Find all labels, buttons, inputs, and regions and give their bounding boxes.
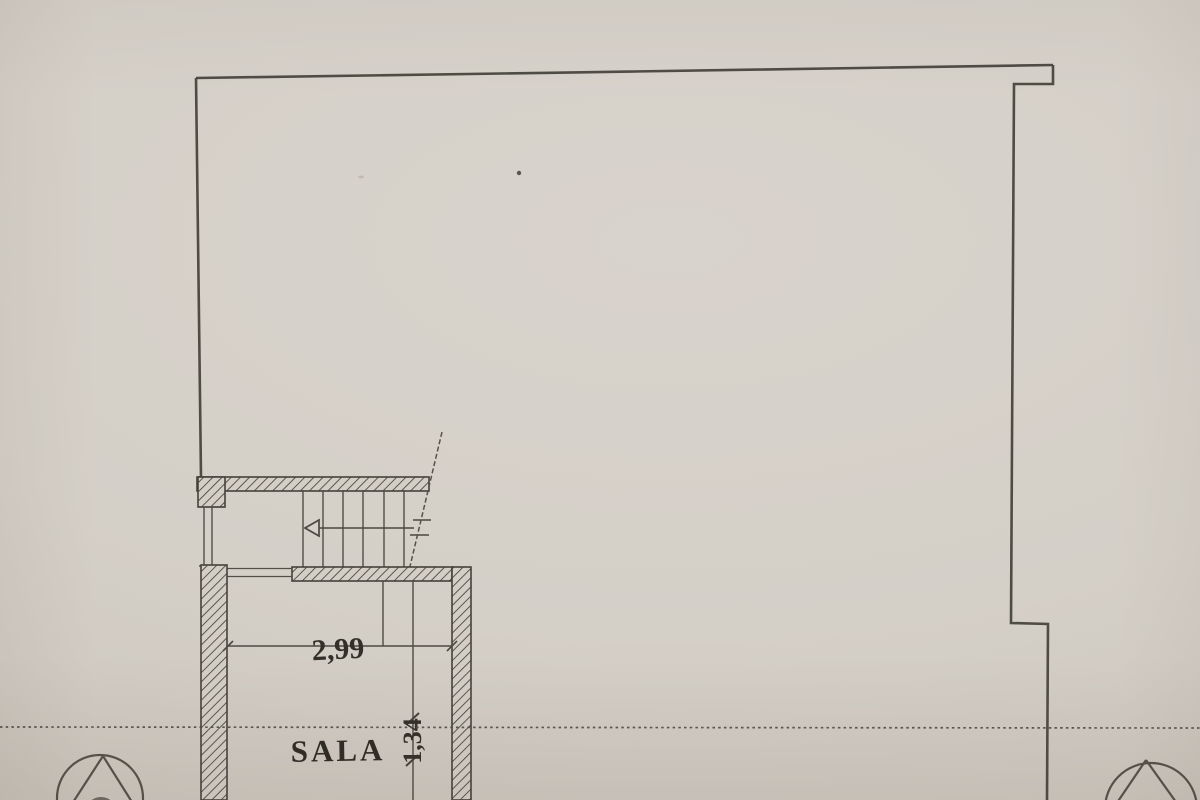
width-dimension-label: 2,99 (311, 632, 365, 668)
upper-room-left-wall-line (196, 78, 201, 477)
stair-bottom-wall (292, 567, 452, 581)
stair-window (199, 507, 227, 566)
scanned-floorplan-page: 2,99 1,34 SALA (0, 0, 1200, 800)
north-arrow-right (1105, 760, 1197, 800)
stair-left-corner-wall (198, 477, 225, 507)
section-dashed-line (0, 727, 1200, 728)
north-arrow-right-triangle (1108, 760, 1186, 800)
north-arrow-left-triangle (68, 756, 137, 800)
staircase (197, 432, 452, 581)
height-dimension: 1,34 (398, 581, 427, 800)
stair-door-threshold (227, 569, 292, 577)
paper-specks (358, 171, 521, 179)
width-dimension: 2,99 (223, 632, 457, 668)
stair-direction-arrow (305, 520, 431, 536)
stair-break-line (407, 432, 442, 579)
upper-room-outline (196, 65, 1053, 800)
upper-room-top-wall-line (196, 65, 1053, 78)
floorplan-canvas: 2,99 1,34 SALA (0, 0, 1200, 800)
room-label: SALA (290, 732, 385, 769)
sala-left-wall (201, 565, 227, 800)
upper-room-right-wall-line (1011, 65, 1053, 800)
north-arrow-left (57, 755, 143, 800)
stair-top-wall (197, 477, 429, 491)
sala-right-wall (452, 567, 471, 800)
height-dimension-label: 1,34 (398, 718, 427, 764)
